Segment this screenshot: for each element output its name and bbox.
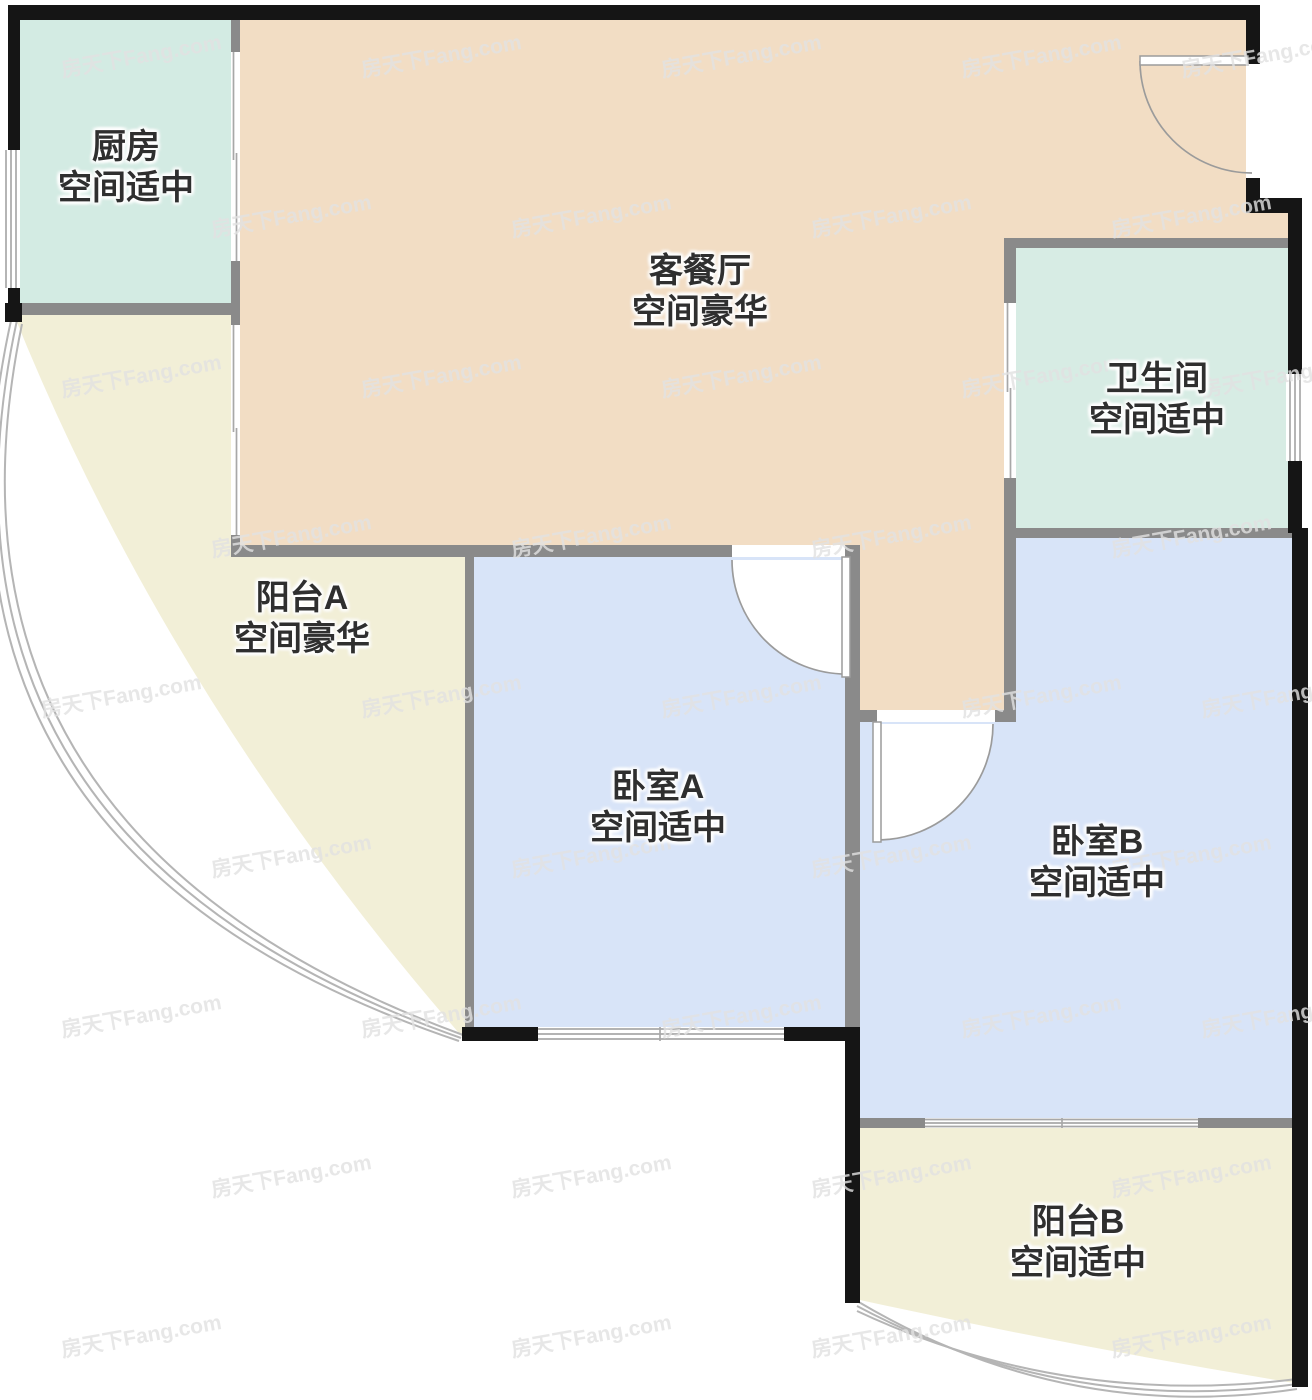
bathroom-size: 空间适中 [1089,400,1225,441]
living-size: 空间豪华 [632,292,768,333]
living-dining-label: 客餐厅 空间豪华 [632,251,768,333]
top-wall [8,5,1260,20]
bathroom-bottom-wall [1004,528,1304,538]
balcony-a-size: 空间豪华 [234,619,370,660]
balcony-a-sliding-door [231,325,240,535]
bedroom-a-label: 卧室A 空间适中 [590,767,726,849]
right-wall-bedroom-b [1292,528,1308,1125]
bedroom-a-name: 卧室A [590,767,726,808]
right-wall-balcony-b [1292,1125,1308,1387]
living-bottom-wall [231,545,732,557]
bedroom-b-label: 卧室B 空间适中 [1029,822,1165,904]
bedroom-a-left-wall [465,545,474,1040]
bedroom-a-size: 空间适中 [590,808,726,849]
bedroom-b-bottom-window [925,1118,1198,1128]
balcony-a-label: 阳台A 空间豪华 [234,578,370,660]
bedroom-a-bottom-wall-right [784,1027,846,1041]
right-wall-upper [1288,208,1302,374]
kitchen-sliding-door [231,52,240,261]
bedroom-a-bottom-wall-left [462,1027,538,1041]
bathroom-sliding-door [1004,303,1016,478]
kitchen-left-window [2,150,20,288]
bathroom-name: 卫生间 [1089,359,1225,400]
kitchen-bottom-wall [8,303,238,315]
bathroom-label: 卫生间 空间适中 [1089,359,1225,441]
balcony-a-name: 阳台A [234,578,370,619]
room-fills [14,20,1294,1383]
bedroom-a-bottom-window [538,1027,784,1041]
kitchen-name: 厨房 [58,127,194,168]
bathroom-top-wall [1004,238,1300,248]
balcony-b-size: 空间适中 [1010,1243,1146,1284]
bathroom-right-window [1286,374,1304,461]
living-name: 客餐厅 [632,251,768,292]
floor-plan-drawing [0,0,1312,1400]
balcony-b-name: 阳台B [1010,1202,1146,1243]
balcony-b-left-wall [845,1027,860,1303]
bedroom-b-size: 空间适中 [1029,863,1165,904]
right-wall-entry-top [1246,5,1260,64]
kitchen-divider-bottom-stub [231,261,240,325]
left-wall-upper [8,5,20,150]
kitchen-label: 厨房 空间适中 [58,127,194,209]
balcony-a-arc-cap [5,303,22,322]
kitchen-divider-top-stub [231,20,240,52]
bedroom-b-name: 卧室B [1029,822,1165,863]
kitchen-size: 空间适中 [58,168,194,209]
balcony-b-label: 阳台B 空间适中 [1010,1202,1146,1284]
floor-plan: 房天下Fang.com房天下Fang.com房天下Fang.com房天下Fang… [0,0,1312,1400]
right-wall-mid [1288,461,1302,533]
